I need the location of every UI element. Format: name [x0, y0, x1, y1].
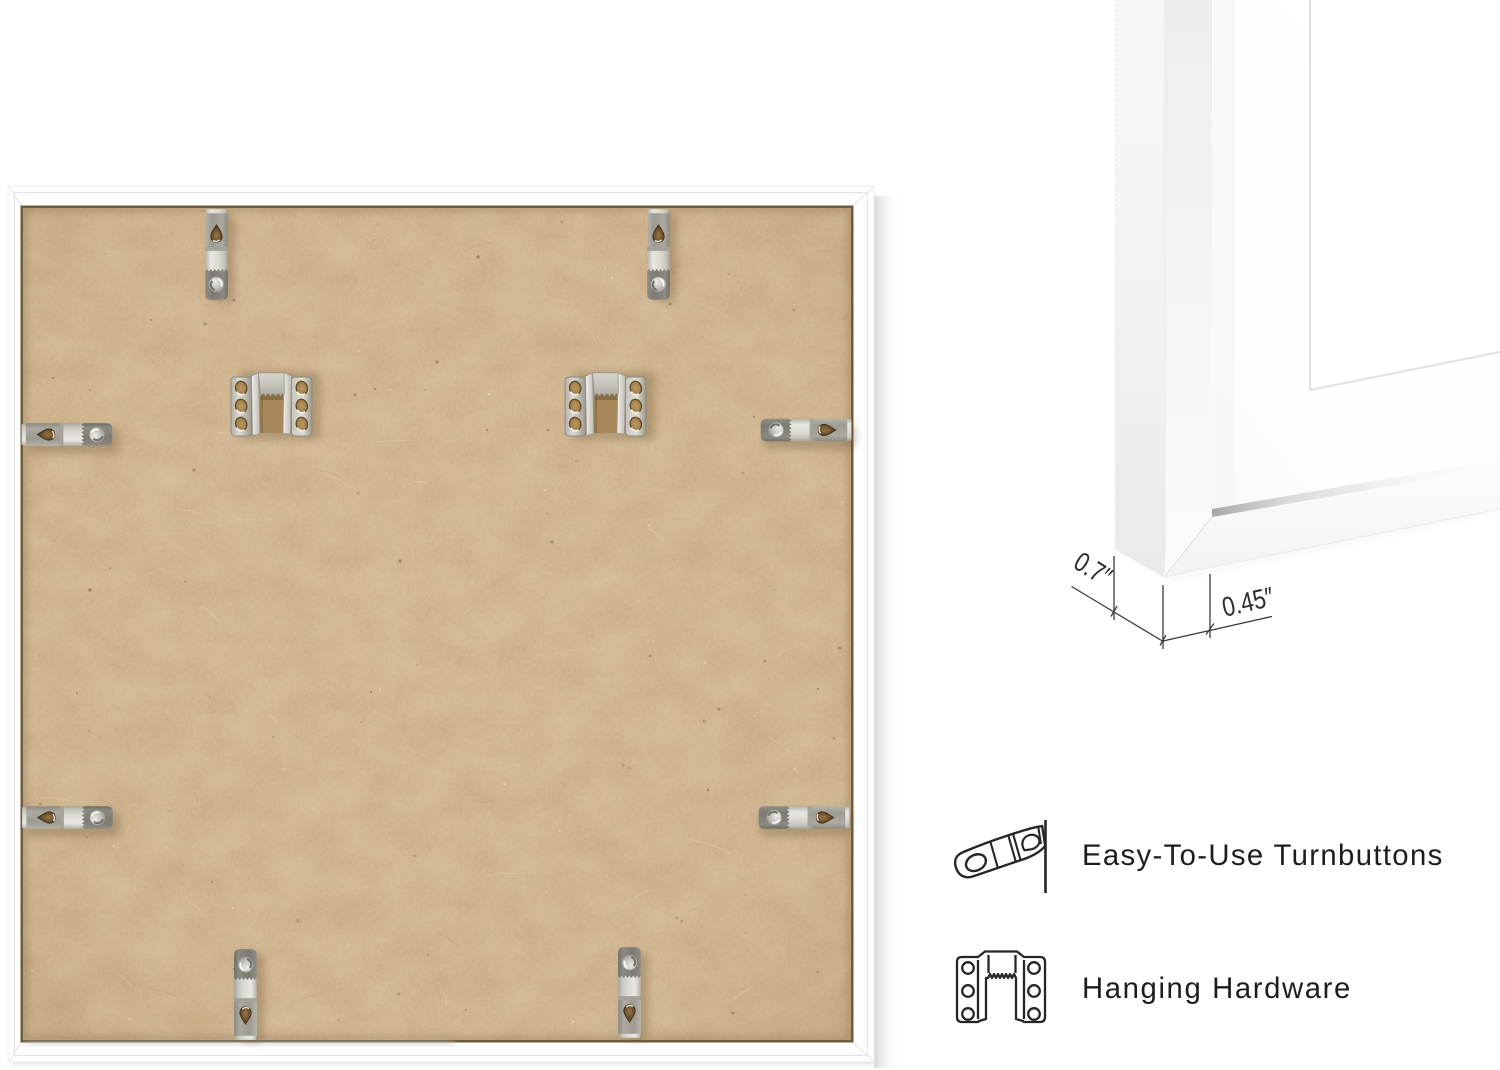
svg-text:Easy-To-Use Turnbuttons: Easy-To-Use Turnbuttons — [1082, 839, 1444, 872]
svg-text:Hanging Hardware: Hanging Hardware — [1082, 972, 1352, 1005]
